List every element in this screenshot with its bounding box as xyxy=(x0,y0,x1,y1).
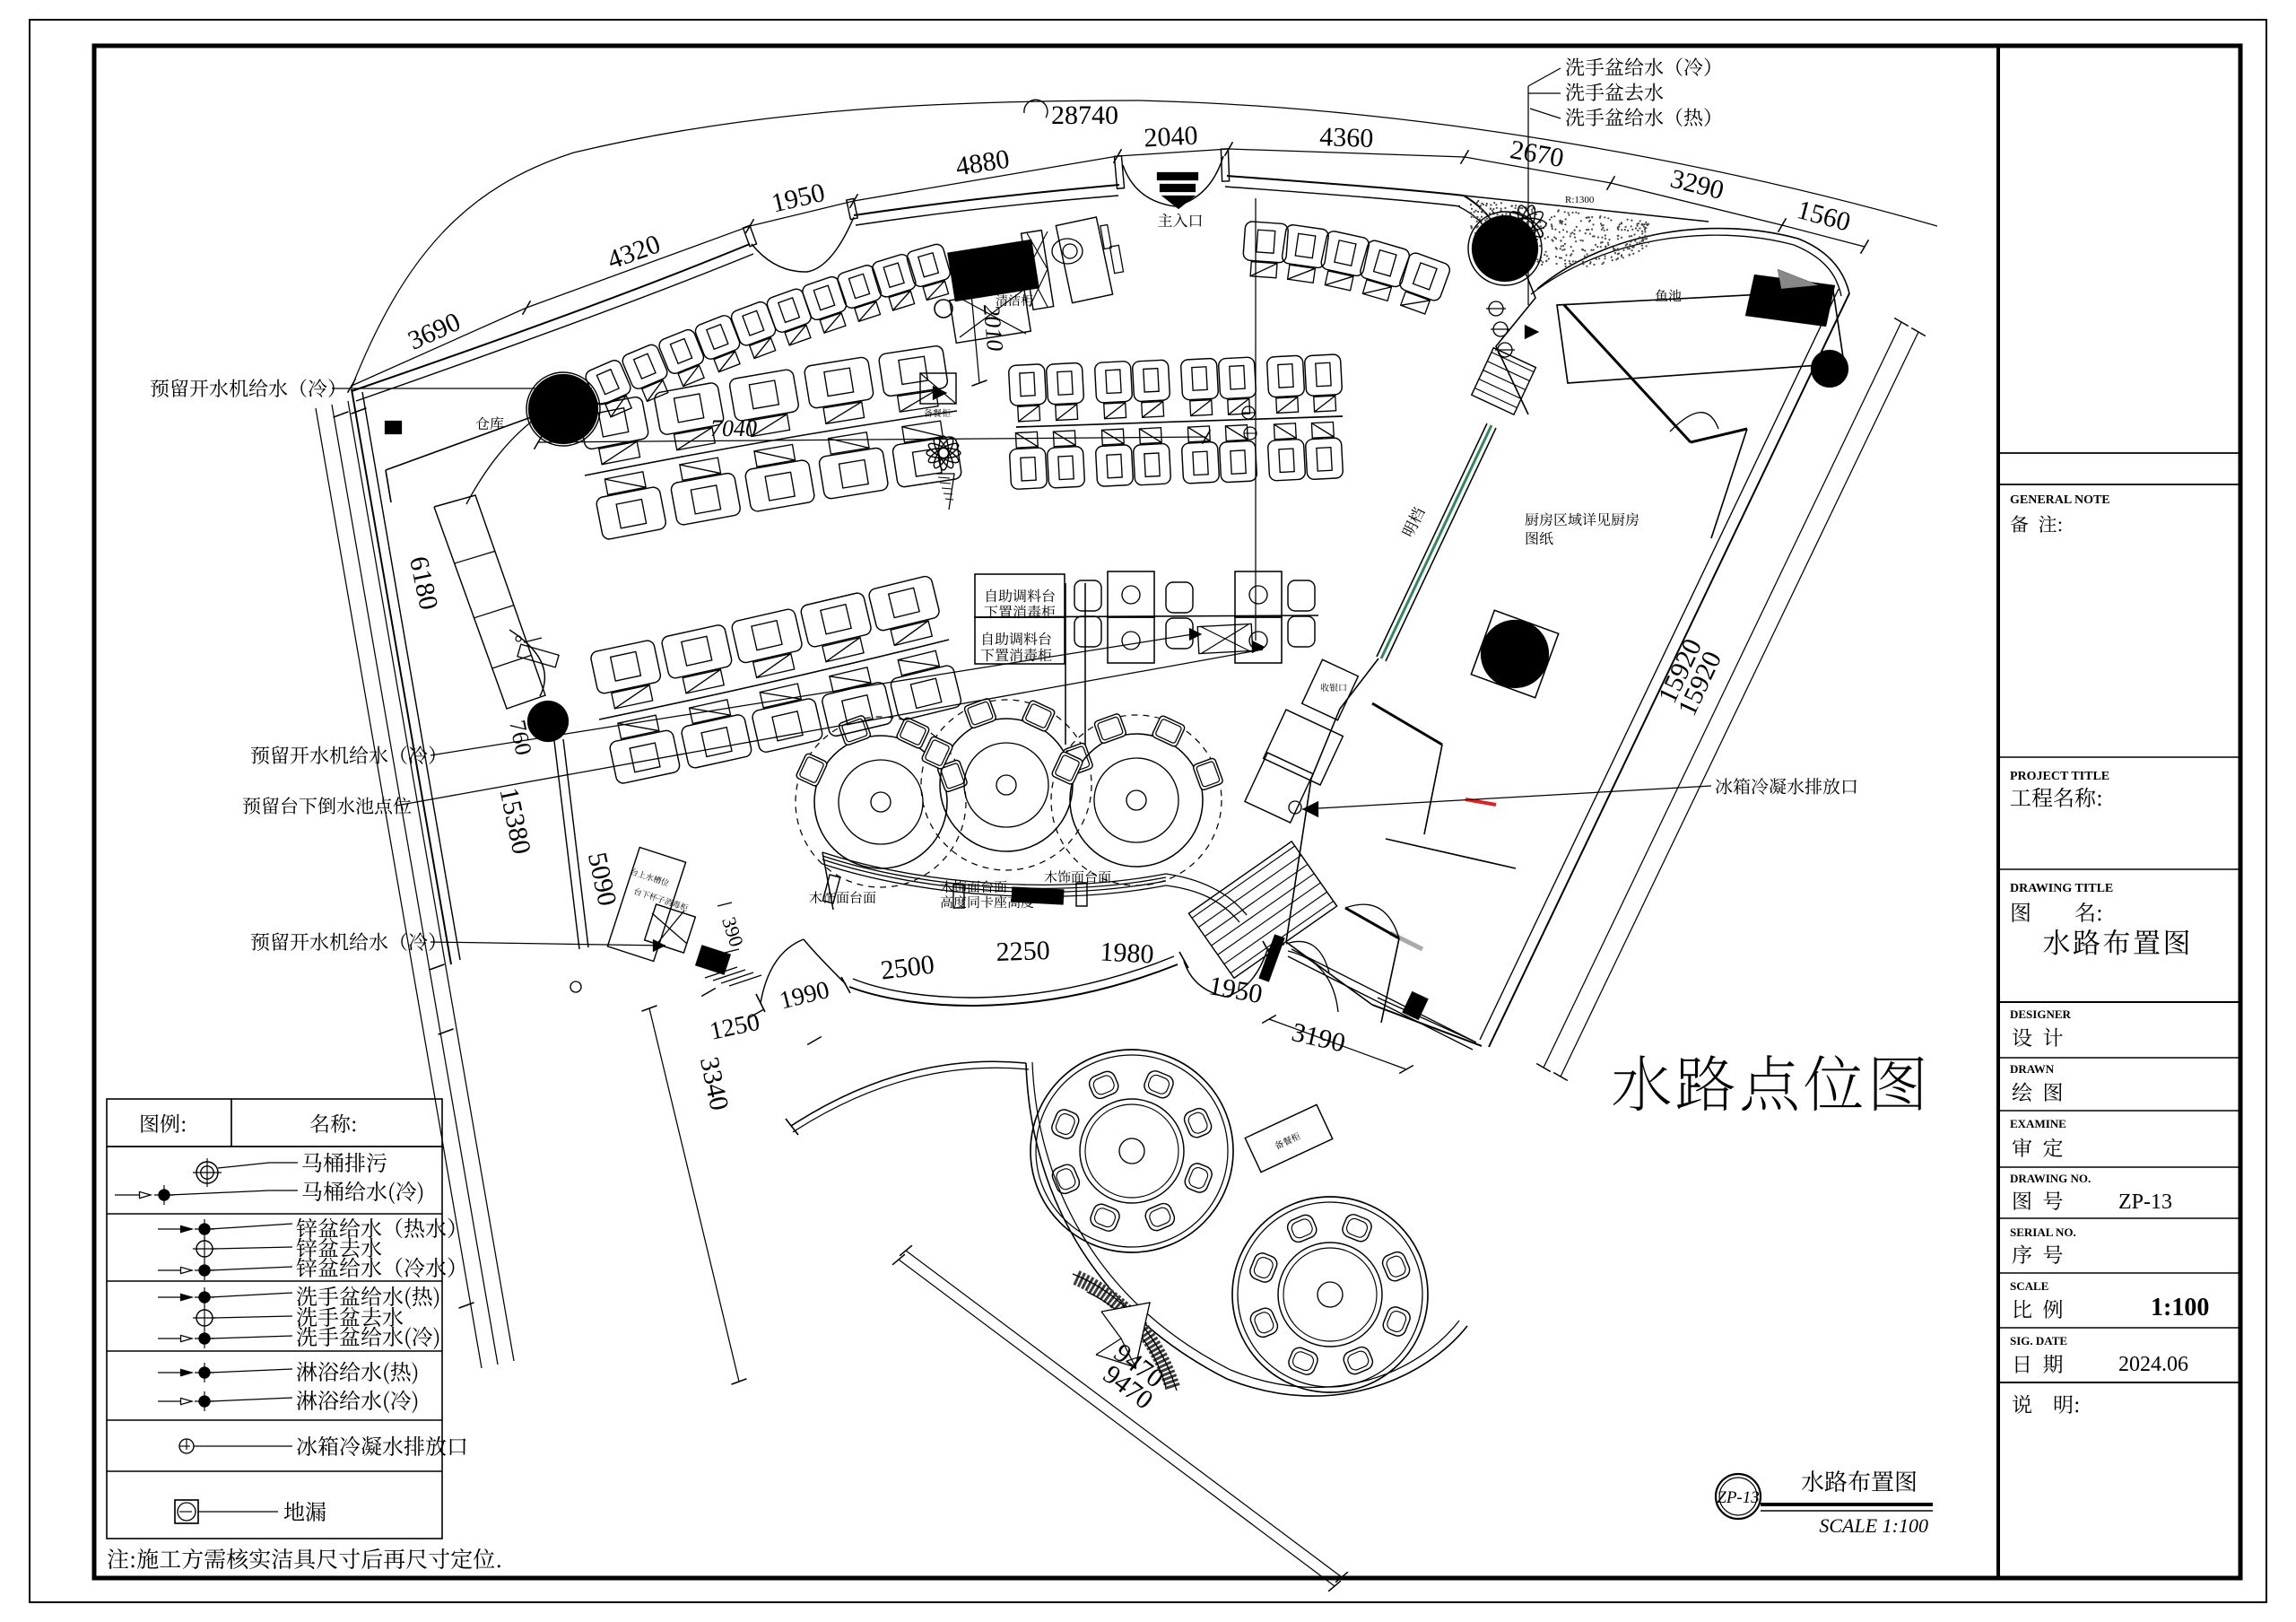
svg-text:2040: 2040 xyxy=(1144,120,1199,153)
svg-text:1:100: 1:100 xyxy=(2151,1294,2209,1321)
svg-text:7040: 7040 xyxy=(710,415,757,441)
svg-text:SERIAL NO.: SERIAL NO. xyxy=(2010,1225,2076,1239)
svg-text:SCALE: SCALE xyxy=(2010,1279,2048,1293)
svg-text:2250: 2250 xyxy=(996,936,1050,967)
svg-text:R:1300: R:1300 xyxy=(1565,195,1595,205)
svg-text:PROJECT TITLE: PROJECT TITLE xyxy=(2010,770,2109,783)
svg-text:ZP-13: ZP-13 xyxy=(1717,1488,1760,1507)
svg-text:2024.06: 2024.06 xyxy=(2118,1353,2188,1376)
svg-text:SCALE 1:100: SCALE 1:100 xyxy=(1819,1514,1928,1537)
svg-text:4360: 4360 xyxy=(1319,122,1374,153)
svg-text:EXAMINE: EXAMINE xyxy=(2010,1117,2066,1130)
svg-text:GENERAL NOTE: GENERAL NOTE xyxy=(2010,493,2110,507)
svg-text:DRAWN: DRAWN xyxy=(2010,1062,2055,1076)
svg-text:ZP-13: ZP-13 xyxy=(2118,1190,2172,1214)
svg-text:DESIGNER: DESIGNER xyxy=(2010,1007,2072,1021)
svg-text:DRAWING NO.: DRAWING NO. xyxy=(2010,1172,2091,1185)
svg-text:SIG. DATE: SIG. DATE xyxy=(2010,1334,2067,1347)
svg-text:28740: 28740 xyxy=(1051,100,1118,130)
svg-text:DRAWING TITLE: DRAWING TITLE xyxy=(2010,882,2113,895)
svg-text:2010: 2010 xyxy=(978,303,1008,352)
svg-text:1980: 1980 xyxy=(1100,937,1155,969)
